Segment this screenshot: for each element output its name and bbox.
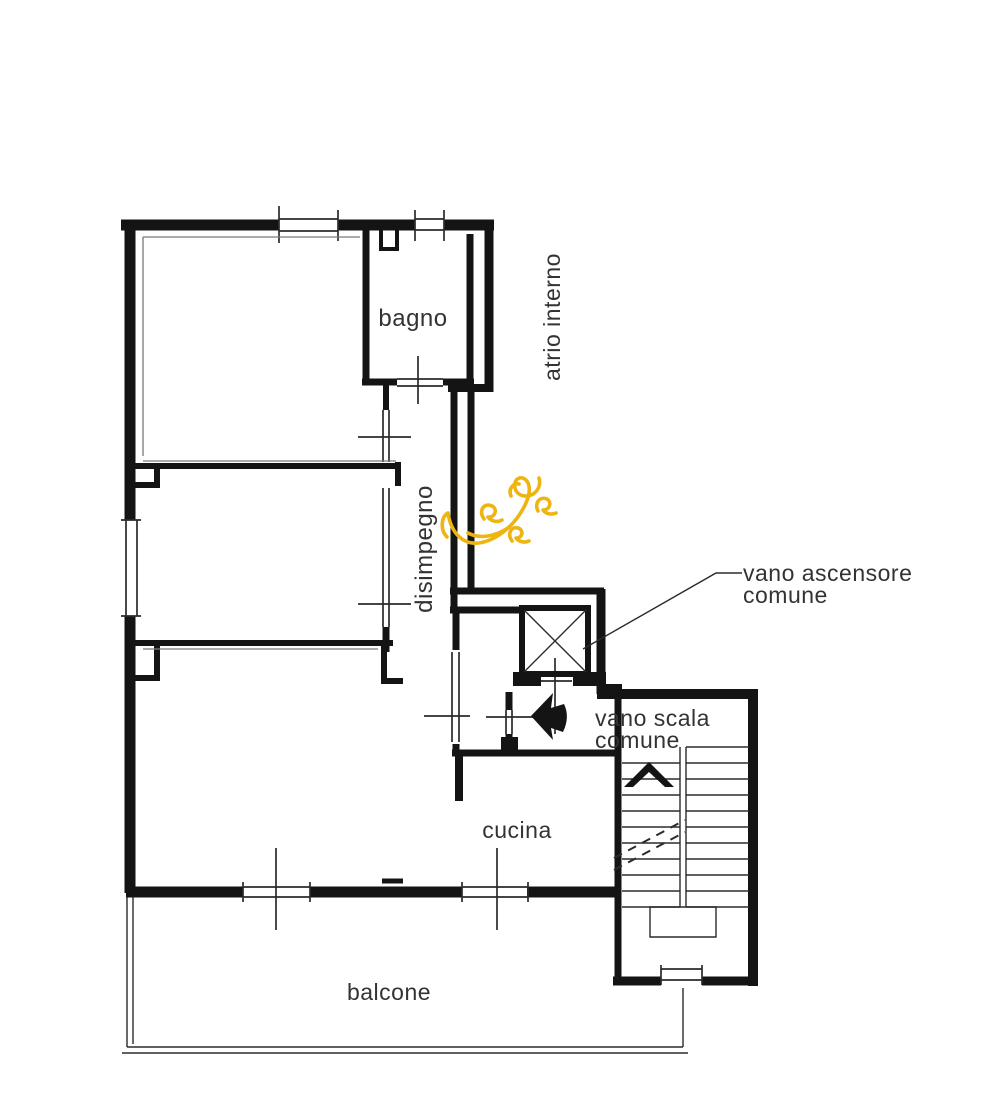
inner-wall-lines xyxy=(143,237,396,649)
label-vano-ascensore-line2: comune xyxy=(743,582,828,608)
room-label-cucina: cucina xyxy=(482,817,551,843)
room-label-bagno: bagno xyxy=(378,305,447,332)
label-vano-scala-line2: comune xyxy=(595,727,680,753)
stair-up-chevron-icon xyxy=(624,762,674,787)
leader-line-elevator xyxy=(583,573,742,649)
entrance-arrow-icon xyxy=(531,693,567,740)
stair-landing xyxy=(650,907,716,937)
staircase xyxy=(614,747,749,937)
corridor-wall-block xyxy=(501,737,518,753)
room-label-atrio-interno: atrio interno xyxy=(539,253,565,381)
room-label-balcone: balcone xyxy=(347,979,431,1005)
floor-plan-drawing: bagno atrio interno disimpegno vano asce… xyxy=(0,0,1000,1102)
flourish-annotation-icon xyxy=(442,478,556,543)
balcony-outline xyxy=(122,897,688,1053)
room-label-disimpegno: disimpegno xyxy=(411,485,438,613)
floor-plan-page: bagno atrio interno disimpegno vano asce… xyxy=(0,0,1000,1102)
stair-wall-step xyxy=(600,684,622,697)
